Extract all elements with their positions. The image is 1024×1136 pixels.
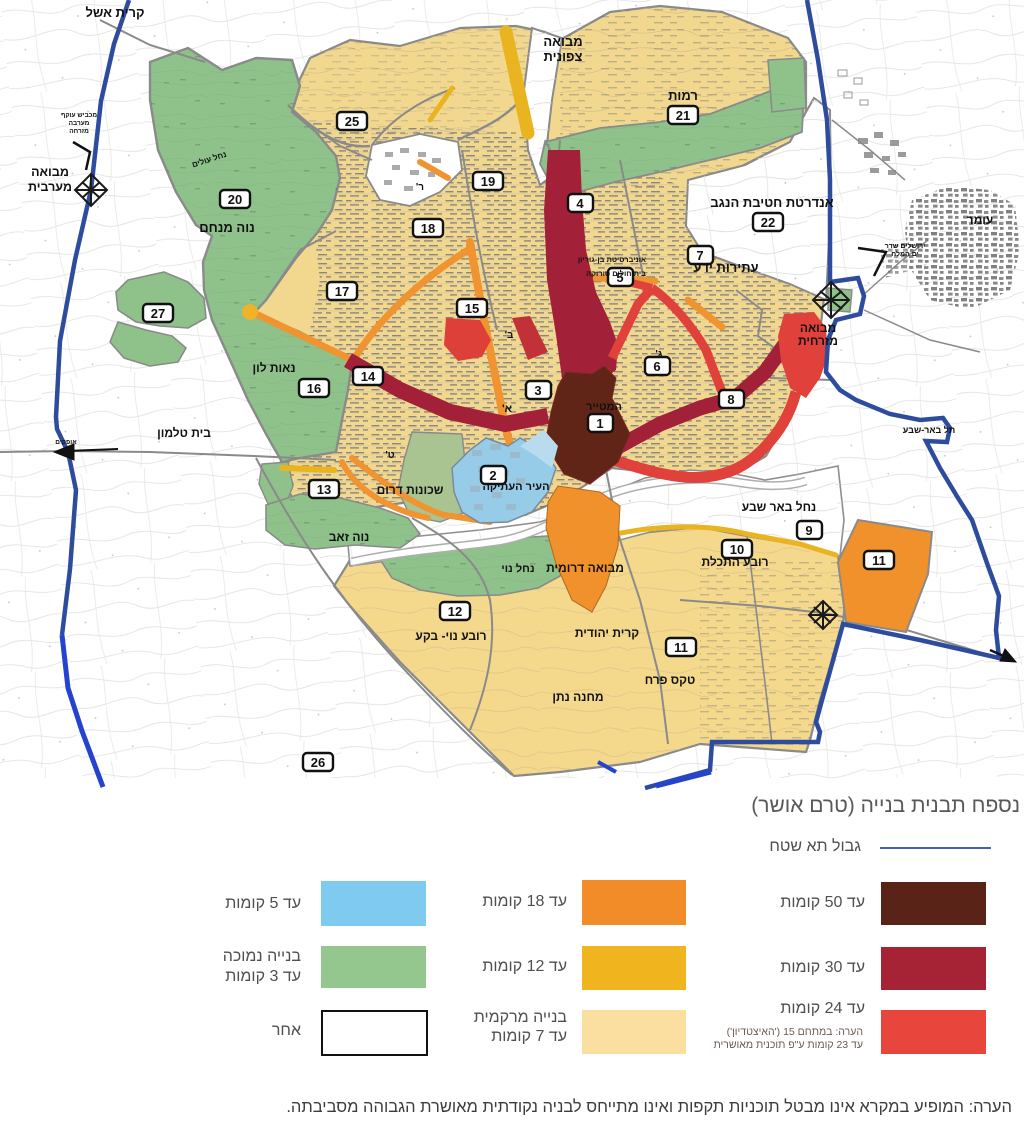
- svg-text:מערבית: מערבית: [28, 180, 72, 194]
- svg-text:מבואה: מבואה: [31, 165, 69, 179]
- svg-text:16: 16: [307, 381, 321, 396]
- svg-text:9: 9: [805, 523, 812, 538]
- svg-text:15: 15: [465, 301, 479, 316]
- svg-text:25: 25: [345, 114, 359, 129]
- svg-text:מבואה: מבואה: [800, 321, 836, 335]
- svg-text:20: 20: [228, 192, 242, 207]
- svg-text:טקס פרח: טקס פרח: [645, 673, 696, 687]
- svg-text:ב': ב': [505, 330, 514, 341]
- svg-text:רובע נוי- בקע: רובע נוי- בקע: [415, 629, 486, 643]
- svg-text:6: 6: [653, 359, 660, 374]
- svg-text:העיר העתיקה: העיר העתיקה: [482, 481, 549, 493]
- svg-text:קרית יהודית: קרית יהודית: [575, 626, 639, 640]
- svg-text:נוה מנחם: נוה מנחם: [199, 220, 254, 235]
- svg-text:שכונות דרום: שכונות דרום: [377, 483, 444, 497]
- svg-text:21: 21: [676, 108, 690, 123]
- svg-text:בית טלמון: בית טלמון: [157, 426, 211, 440]
- svg-text:13: 13: [317, 482, 331, 497]
- svg-text:נחל נוי: נחל נוי: [501, 562, 534, 575]
- svg-text:קרית אשל: קרית אשל: [85, 5, 144, 20]
- svg-text:בית חולים סורוקה: בית חולים סורוקה: [586, 269, 646, 278]
- svg-text:26: 26: [311, 755, 325, 770]
- svg-text:רמות: רמות: [668, 88, 698, 103]
- svg-text:3: 3: [534, 383, 541, 398]
- svg-text:מערבה: מערבה: [69, 120, 90, 127]
- svg-text:14: 14: [361, 369, 376, 384]
- svg-text:ים המלח: ים המלח: [891, 250, 918, 258]
- svg-text:מחנה נתן: מחנה נתן: [552, 690, 603, 704]
- svg-text:27: 27: [151, 306, 165, 321]
- svg-text:4: 4: [576, 196, 584, 211]
- svg-text:מזרחה: מזרחה: [69, 128, 89, 135]
- svg-text:אופקים: אופקים: [55, 439, 77, 446]
- svg-text:1: 1: [596, 416, 603, 431]
- svg-text:מבואה: מבואה: [543, 34, 582, 49]
- svg-text:תל באר-שבע: תל באר-שבע: [903, 425, 955, 435]
- svg-text:18: 18: [421, 221, 435, 236]
- svg-text:אוניברסיטת בן-גוריון: אוניברסיטת בן-גוריון: [578, 255, 646, 264]
- svg-text:ט': ט': [385, 450, 394, 461]
- svg-text:נוה זאב: נוה זאב: [329, 530, 370, 544]
- svg-text:נאות לון: נאות לון: [252, 361, 295, 375]
- svg-text:11: 11: [872, 553, 886, 568]
- svg-text:22: 22: [761, 215, 775, 230]
- svg-text:19: 19: [481, 174, 495, 189]
- svg-text:עתירות ידע: עתירות ידע: [693, 260, 758, 275]
- svg-text:ירושלים שדר: ירושלים שדר: [885, 242, 926, 250]
- svg-text:8: 8: [727, 392, 734, 407]
- svg-text:ג': ג': [655, 349, 662, 360]
- svg-text:מזרחית: מזרחית: [798, 334, 838, 348]
- svg-text:מכביש עוקף: מכביש עוקף: [61, 112, 97, 119]
- svg-text:המטייר: המטייר: [586, 401, 622, 413]
- svg-text:אנדרטת חטיבת הנגב: אנדרטת חטיבת הנגב: [710, 195, 833, 210]
- svg-text:17: 17: [335, 284, 349, 299]
- svg-text:א': א': [502, 403, 513, 415]
- svg-text:מבואה דרומית: מבואה דרומית: [546, 561, 624, 575]
- svg-text:12: 12: [448, 604, 462, 619]
- svg-text:נחל באר שבע: נחל באר שבע: [742, 500, 816, 514]
- svg-text:11: 11: [674, 640, 688, 655]
- svg-text:רובע התכלת: רובע התכלת: [701, 555, 768, 569]
- svg-text:ר': ר': [416, 182, 424, 193]
- svg-text:צפונית: צפונית: [544, 49, 583, 64]
- svg-text:עומר: עומר: [967, 213, 994, 227]
